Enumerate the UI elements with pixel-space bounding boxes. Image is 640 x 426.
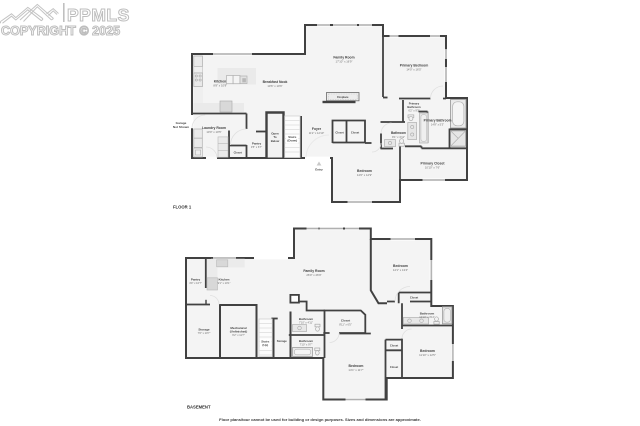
svg-text:4'9" x 10'7": 4'9" x 10'7" [189,281,202,285]
svg-text:11'2" x 12'10": 11'2" x 12'10" [309,131,325,135]
svg-text:Bathroom: Bathroom [391,131,406,135]
svg-text:Below: Below [271,139,280,143]
svg-text:Floor plans/tour cannot be use: Floor plans/tour cannot be used for buil… [219,417,421,422]
svg-text:(Up): (Up) [262,343,268,347]
svg-text:Fireplace: Fireplace [337,95,349,99]
svg-text:PPMLS: PPMLS [67,5,130,25]
svg-text:(Unfinished): (Unfinished) [230,330,248,334]
svg-text:Entry: Entry [315,168,323,172]
svg-text:Bathroom: Bathroom [420,312,435,316]
svg-text:3'5" x 6'7": 3'5" x 6'7" [251,145,262,149]
svg-text:Kitchen: Kitchen [218,278,229,282]
svg-text:11'10" x 12'5": 11'10" x 12'5" [419,353,436,357]
svg-text:14'0" x 16'5": 14'0" x 16'5" [406,68,421,72]
svg-text:Storage: Storage [198,328,210,332]
svg-text:10'10" x 4'11": 10'10" x 4'11" [419,315,435,319]
svg-text:Storage: Storage [277,339,288,343]
svg-text:17'10" x 16'9": 17'10" x 16'9" [336,60,353,64]
svg-text:Closet: Closet [410,295,418,299]
svg-text:9'1" x 10'1": 9'1" x 10'1" [218,281,231,285]
svg-text:8'11" x 6'5": 8'11" x 6'5" [339,322,352,326]
svg-text:Bathroom: Bathroom [299,339,313,343]
svg-text:COPYRIGHT © 2025: COPYRIGHT © 2025 [1,24,120,38]
svg-text:7'6" x 10'7": 7'6" x 10'7" [198,331,211,335]
svg-text:Closet: Closet [234,150,242,154]
svg-text:14'8" x 5'3": 14'8" x 5'3" [431,122,444,126]
svg-text:FLOOR 1: FLOOR 1 [173,205,192,210]
svg-text:14'0" x 12'9": 14'0" x 12'9" [357,173,372,177]
svg-text:(Down): (Down) [287,139,297,143]
svg-text:Closet: Closet [351,130,359,134]
svg-text:7'10" x 9'7": 7'10" x 9'7" [300,343,313,347]
svg-text:Bathroom: Bathroom [407,105,421,109]
svg-text:Pantry: Pantry [252,141,262,145]
svg-text:9'1" x 4'11": 9'1" x 4'11" [392,135,405,139]
svg-text:Closet: Closet [341,319,350,323]
svg-text:26'0" x 26'9": 26'0" x 26'9" [306,273,321,277]
svg-text:Primary Bathroom: Primary Bathroom [424,119,452,123]
svg-text:10'0" x 10'5": 10'0" x 10'5" [206,130,221,134]
svg-text:10'10" x 7'6": 10'10" x 7'6" [425,166,440,170]
svg-text:Pantry: Pantry [191,278,201,282]
svg-text:6'2" x 9'3": 6'2" x 9'3" [408,108,419,112]
svg-text:Closet: Closet [390,365,398,369]
svg-text:6'2" x 11'7": 6'2" x 11'7" [232,333,245,337]
svg-text:BASEMENT: BASEMENT [187,405,211,410]
svg-text:Closet: Closet [335,130,343,134]
svg-text:14'1" x 11'7": 14'1" x 11'7" [348,368,363,372]
svg-text:Foyer: Foyer [312,127,322,131]
svg-text:10'6" x 10'6": 10'6" x 10'6" [267,84,282,88]
svg-text:7'10" x 4'11": 7'10" x 4'11" [299,321,313,325]
svg-text:Not Shown: Not Shown [173,125,189,129]
svg-text:8'8" x 10'8": 8'8" x 10'8" [213,83,227,87]
svg-text:Closet: Closet [390,343,398,347]
svg-text:Bathroom: Bathroom [299,317,313,321]
svg-text:14'1" x 13'4": 14'1" x 13'4" [393,268,408,272]
